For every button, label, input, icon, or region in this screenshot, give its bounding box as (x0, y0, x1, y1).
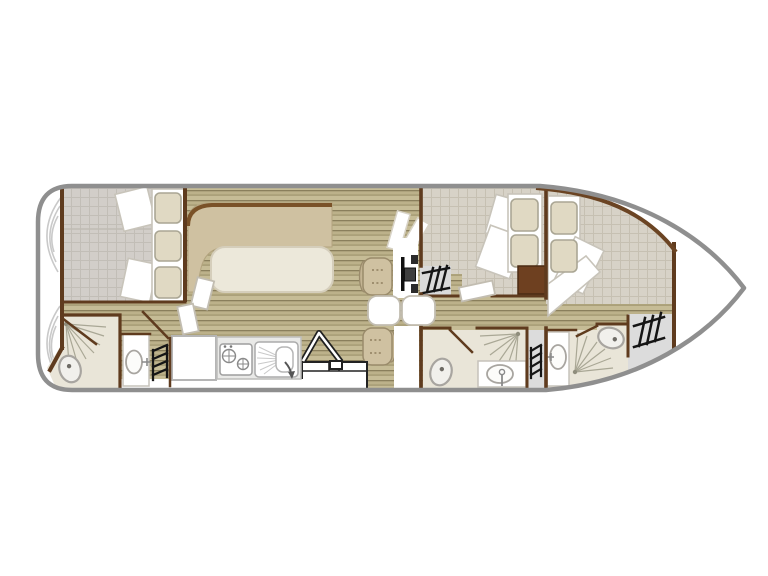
sliding-door (368, 296, 400, 325)
boat-floor-plan (0, 0, 768, 576)
aft-washbasin (123, 334, 151, 386)
helm-seat (360, 258, 393, 295)
kitchen-sink-icon (255, 342, 298, 379)
wardrobe (518, 266, 546, 294)
dinette-side-unit (394, 326, 419, 388)
mid-bathroom (423, 330, 527, 388)
steering-wheel (401, 257, 405, 291)
washbasin-icon (547, 332, 569, 386)
companionway-steps (420, 266, 451, 296)
aft-cabin-pillows (155, 193, 181, 298)
sliding-door (402, 296, 435, 325)
stove-icon (220, 344, 252, 375)
floor-plan-canvas (0, 0, 768, 576)
washbasin-icon (478, 361, 526, 387)
helm-console (393, 238, 418, 298)
fridge (172, 336, 216, 380)
bow-deck (674, 186, 748, 390)
dinette-seat (363, 328, 396, 365)
saloon-table (211, 247, 333, 292)
stair-niche (527, 330, 546, 388)
